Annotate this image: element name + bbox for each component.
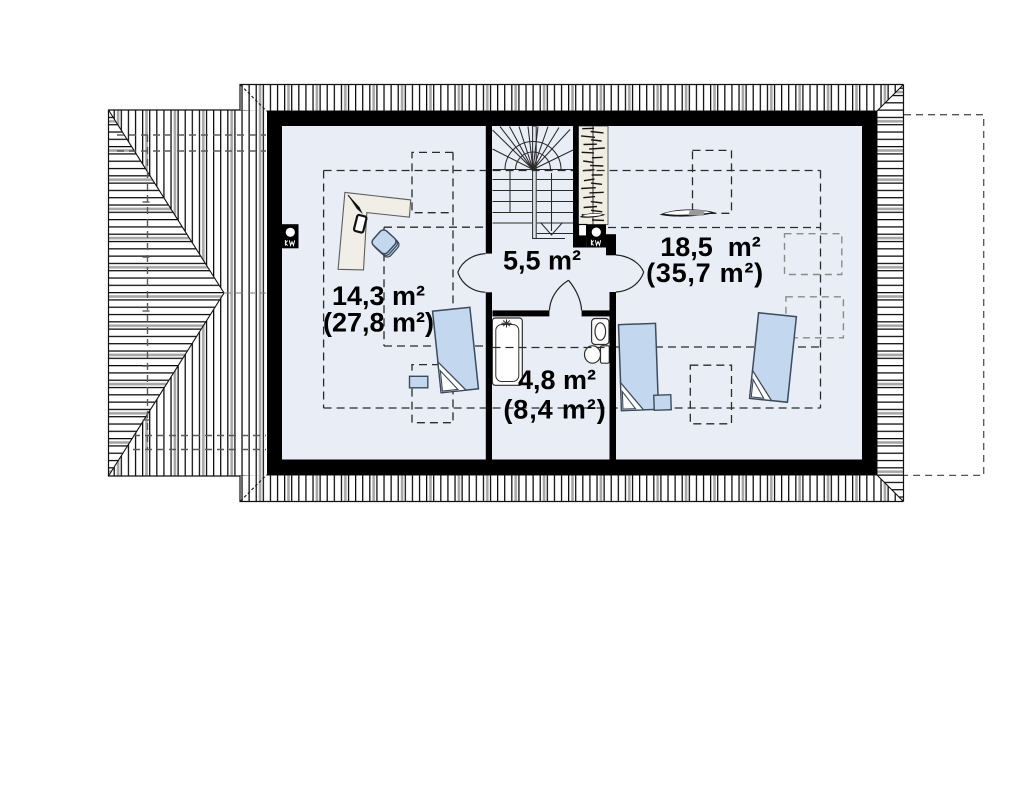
- svg-text:5,5 m²: 5,5 m²: [503, 246, 581, 276]
- svg-text:(27,8 m²): (27,8 m²): [323, 308, 434, 338]
- svg-text:14,3 m²: 14,3 m²: [332, 281, 425, 311]
- svg-text:(8,4 m²): (8,4 m²): [503, 395, 606, 425]
- svg-text:(35,7 m²): (35,7 m²): [646, 258, 764, 288]
- svg-text:4,8 m²: 4,8 m²: [518, 365, 596, 395]
